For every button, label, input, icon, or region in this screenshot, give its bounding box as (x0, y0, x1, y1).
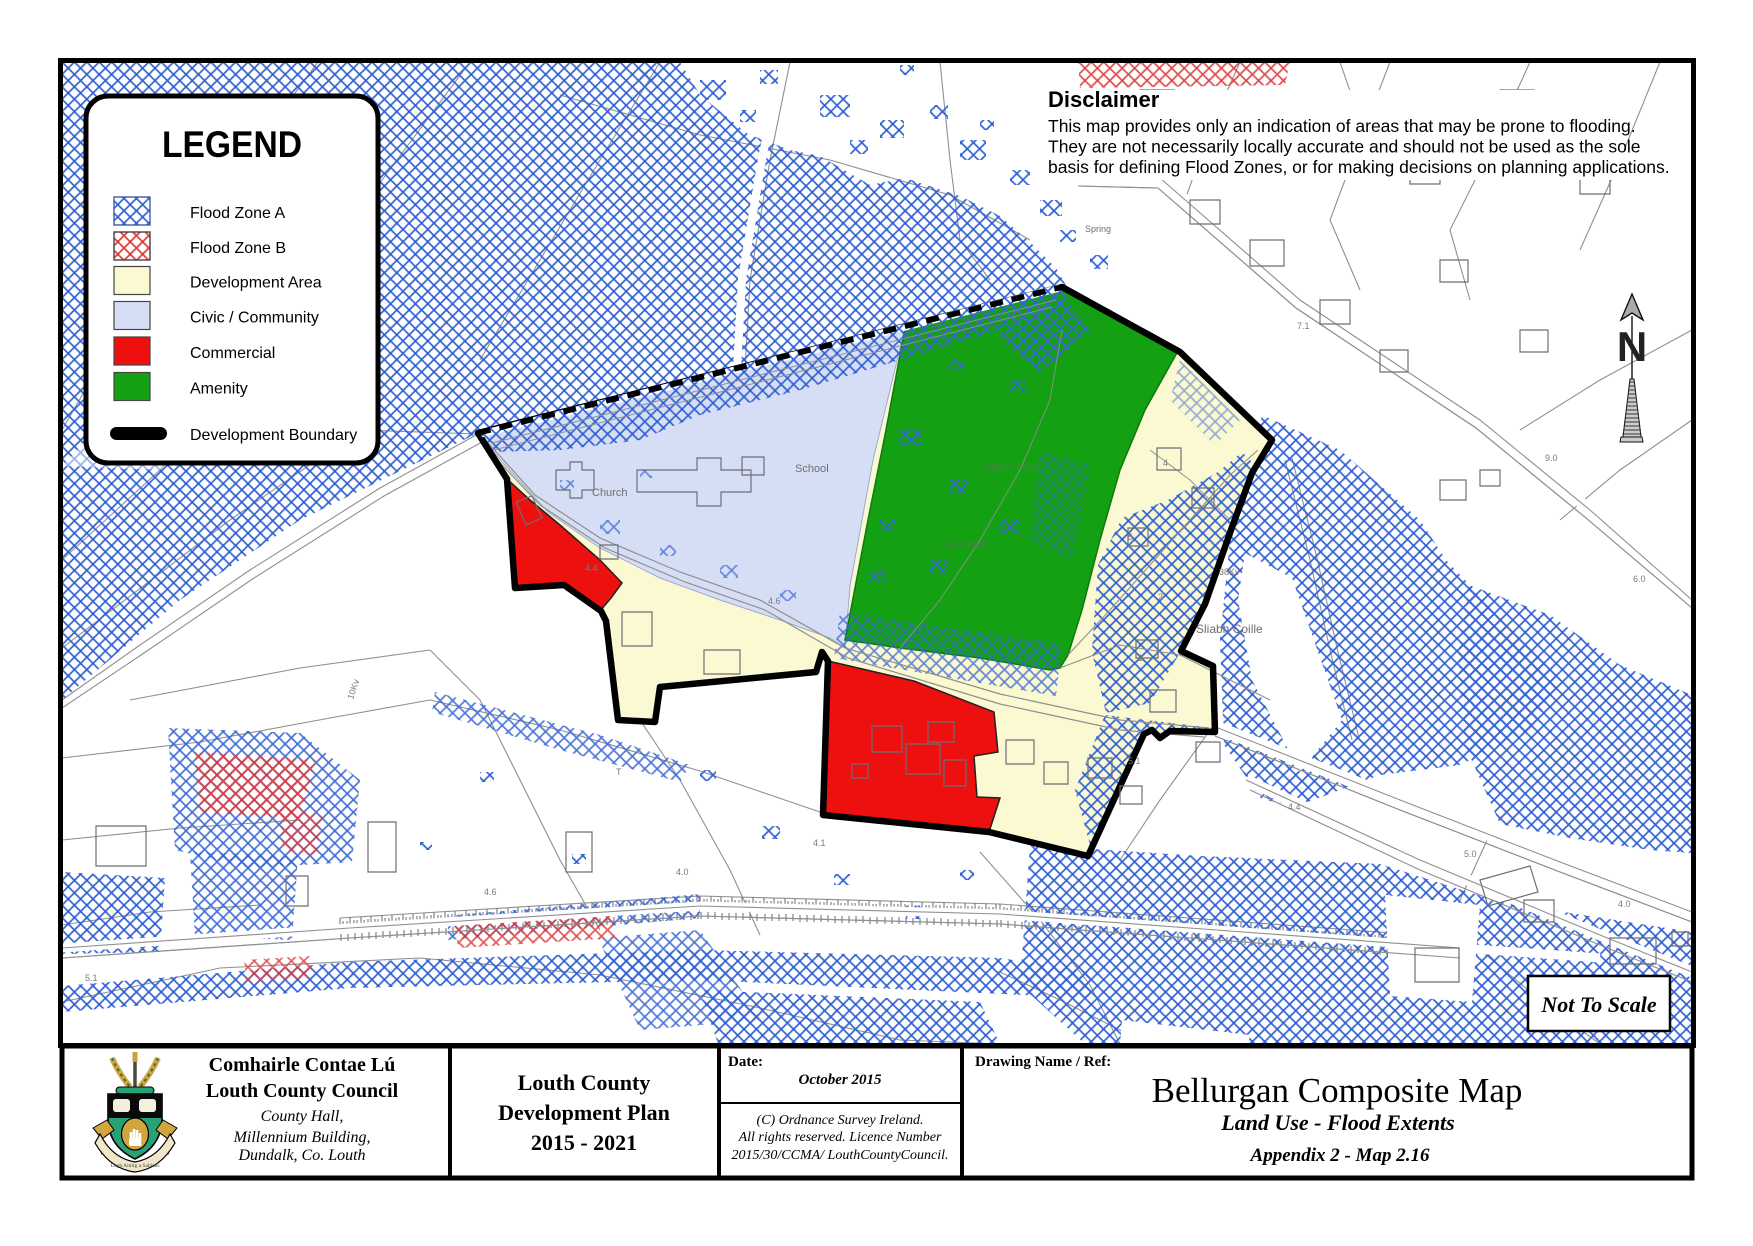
svg-text:Sliabh Coille: Sliabh Coille (1196, 622, 1263, 636)
svg-text:Flood Zone B: Flood Zone B (190, 240, 286, 257)
svg-text:6.0: 6.0 (1633, 574, 1646, 584)
svg-text:This map provides only an indi: This map provides only an indication of … (1048, 116, 1636, 136)
svg-text:2: 2 (1158, 592, 1163, 602)
svg-text:4.6: 4.6 (768, 596, 781, 606)
svg-text:Dundalk, Co. Louth: Dundalk, Co. Louth (237, 1147, 365, 1164)
svg-text:4.4: 4.4 (585, 563, 598, 573)
svg-text:Land Use - Flood Extents: Land Use - Flood Extents (1220, 1110, 1454, 1135)
svg-text:Disclaimer: Disclaimer (1048, 87, 1160, 112)
svg-text:Spring: Spring (1085, 224, 1111, 234)
svg-text:4.6: 4.6 (484, 887, 497, 897)
svg-text:N: N (1617, 323, 1647, 370)
svg-text:Church: Church (592, 487, 627, 499)
svg-text:Comhairle Contae Lú: Comhairle Contae Lú (209, 1054, 396, 1076)
svg-text:5: 5 (1128, 532, 1133, 542)
svg-text:Flood Zone A: Flood Zone A (190, 205, 286, 222)
svg-text:5.1: 5.1 (1128, 756, 1141, 766)
svg-text:4.4: 4.4 (1288, 802, 1301, 812)
svg-text:(C) Ordnance Survey Ireland.: (C) Ordnance Survey Ireland. (757, 1113, 924, 1128)
svg-text:7.1: 7.1 (1297, 321, 1310, 331)
svg-text:2015 - 2021: 2015 - 2021 (531, 1130, 637, 1155)
svg-text:Drawing Name / Ref:: Drawing Name / Ref: (975, 1054, 1111, 1070)
svg-text:All rights reserved. Licence N: All rights reserved. Licence Number (738, 1130, 942, 1145)
svg-text:4.1: 4.1 (813, 838, 826, 848)
svg-text:5.1: 5.1 (85, 973, 98, 983)
svg-text:1: 1 (1138, 653, 1143, 663)
svg-text:Date:: Date: (728, 1054, 763, 1070)
svg-text:Commercial: Commercial (190, 345, 275, 362)
svg-text:Flynn Park: Flynn Park (940, 540, 989, 551)
svg-text:Bellurgan Composite Map: Bellurgan Composite Map (1152, 1071, 1523, 1110)
svg-text:Civic / Community: Civic / Community (190, 310, 319, 327)
svg-text:Not To Scale: Not To Scale (1540, 992, 1657, 1017)
svg-text:4: 4 (1163, 458, 1168, 468)
svg-text:5.0: 5.0 (1464, 849, 1477, 859)
svg-text:October 2015: October 2015 (799, 1072, 882, 1088)
svg-text:basis for defining Flood Zones: basis for defining Flood Zones, or for m… (1048, 157, 1670, 177)
svg-text:Sports Field: Sports Field (985, 462, 1038, 473)
svg-text:Louth County: Louth County (518, 1070, 651, 1095)
svg-text:Appendix 2 - Map 2.16: Appendix 2 - Map 2.16 (1250, 1145, 1430, 1166)
svg-text:Development Boundary: Development Boundary (190, 427, 357, 444)
svg-text:T: T (616, 767, 622, 777)
svg-text:Development Plan: Development Plan (498, 1100, 670, 1125)
svg-text:Amenity: Amenity (190, 381, 248, 398)
svg-text:Development Area: Development Area (190, 275, 322, 292)
svg-text:Lugh Aimig a Sabhais: Lugh Aimig a Sabhais (110, 1163, 159, 1169)
svg-text:2015/30/CCMA/ LouthCountyCounc: 2015/30/CCMA/ LouthCountyCouncil. (731, 1148, 948, 1163)
svg-text:3: 3 (1208, 496, 1213, 506)
svg-text:Louth County Council: Louth County Council (206, 1080, 399, 1102)
svg-text:School: School (795, 463, 829, 475)
svg-text:They are not necessarily local: They are not necessarily locally accurat… (1048, 137, 1640, 157)
svg-text:LEGEND: LEGEND (162, 124, 302, 165)
svg-text:9.0: 9.0 (1545, 453, 1558, 463)
svg-text:4.0: 4.0 (1618, 899, 1631, 909)
svg-text:County Hall,: County Hall, (261, 1108, 344, 1125)
svg-text:Millennium Building,: Millennium Building, (233, 1129, 371, 1146)
svg-text:38Kv: 38Kv (1219, 567, 1240, 577)
svg-text:4.0: 4.0 (676, 867, 689, 877)
